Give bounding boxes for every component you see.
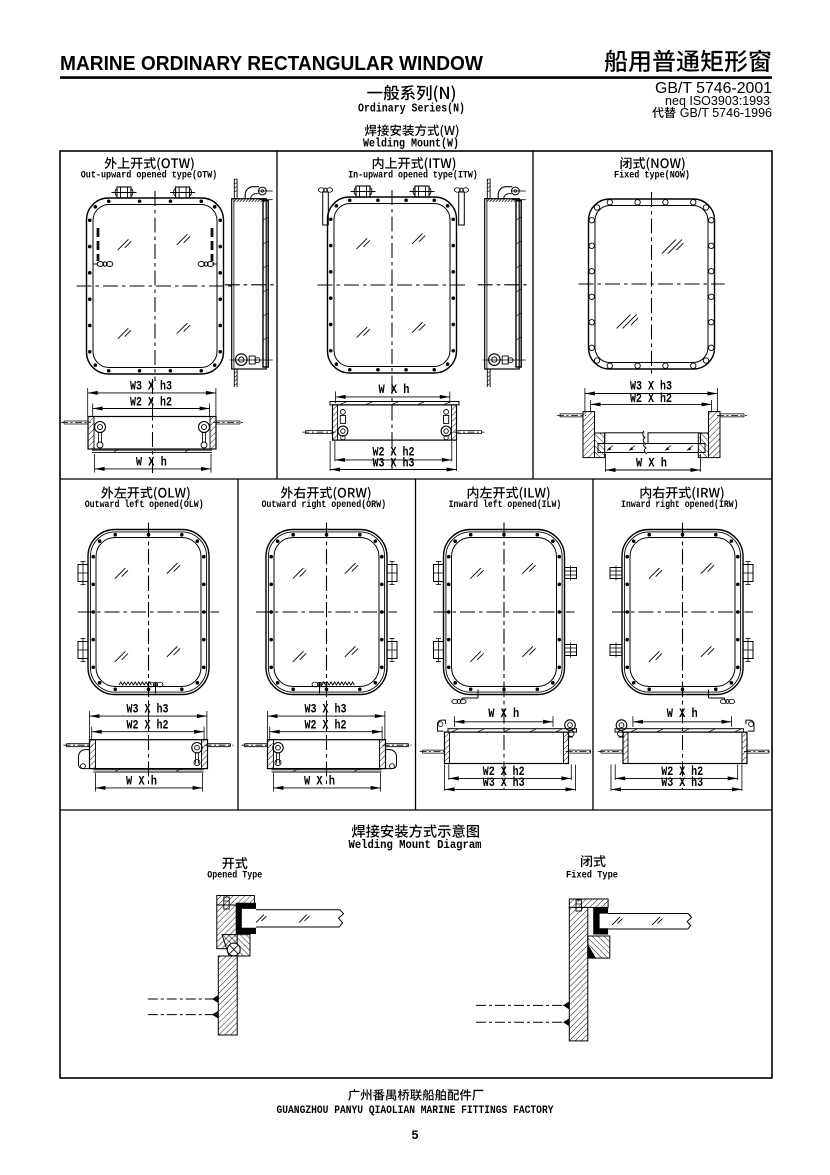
svg-text:5: 5: [411, 1129, 419, 1143]
svg-text:W3 X h3: W3 X h3: [127, 703, 169, 717]
svg-text:W3 X h3: W3 X h3: [661, 776, 703, 790]
svg-text:Ordinary Series(N): Ordinary Series(N): [358, 103, 465, 116]
svg-text:W3 X h3: W3 X h3: [483, 776, 525, 790]
svg-text:Inward left opened(ILW): Inward left opened(ILW): [449, 499, 562, 511]
svg-text:W X h: W X h: [126, 775, 157, 789]
svg-text:W X h: W X h: [304, 775, 335, 789]
svg-text:MARINE ORDINARY RECTANGULAR WI: MARINE ORDINARY RECTANGULAR WINDOW: [60, 53, 483, 75]
svg-text:W2 X h2: W2 X h2: [305, 719, 347, 733]
svg-text:Out-upward opened type(OTW): Out-upward opened type(OTW): [81, 170, 218, 182]
svg-text:In-upward opened type(ITW): In-upward opened type(ITW): [348, 170, 478, 182]
svg-text:W2 X h2: W2 X h2: [127, 719, 169, 733]
svg-text:Welding Mount Diagram: Welding Mount Diagram: [349, 838, 482, 852]
svg-text:Welding Mount(W): Welding Mount(W): [363, 138, 459, 151]
svg-text:W X h: W X h: [136, 456, 167, 470]
svg-text:Outward right opened(ORW): Outward right opened(ORW): [261, 499, 386, 511]
svg-text:W X h: W X h: [488, 707, 519, 721]
svg-text:W2 X h2: W2 X h2: [630, 392, 672, 406]
svg-text:Inward right opened(IRW): Inward right opened(IRW): [621, 499, 739, 511]
svg-text:W3 X h3: W3 X h3: [305, 703, 347, 717]
svg-text:W X h: W X h: [379, 383, 410, 397]
svg-text:Fixed type(NOW): Fixed type(NOW): [614, 170, 690, 182]
svg-text:Fixed Type: Fixed Type: [566, 870, 618, 882]
svg-text:Opened Type: Opened Type: [207, 870, 262, 882]
svg-text:W2 X h2: W2 X h2: [130, 395, 172, 409]
svg-text:GB/T 5746-1996: GB/T 5746-1996: [680, 106, 772, 120]
svg-text:GUANGZHOU PANYU QIAOLIAN MARIN: GUANGZHOU PANYU QIAOLIAN MARINE FITTINGS…: [277, 1105, 554, 1117]
svg-text:W3 X h3: W3 X h3: [373, 456, 415, 470]
svg-text:W X h: W X h: [667, 707, 698, 721]
svg-text:Outward left opened(OLW): Outward left opened(OLW): [85, 499, 204, 511]
svg-text:W3 X h3: W3 X h3: [130, 380, 172, 394]
svg-text:W X h: W X h: [636, 456, 667, 470]
